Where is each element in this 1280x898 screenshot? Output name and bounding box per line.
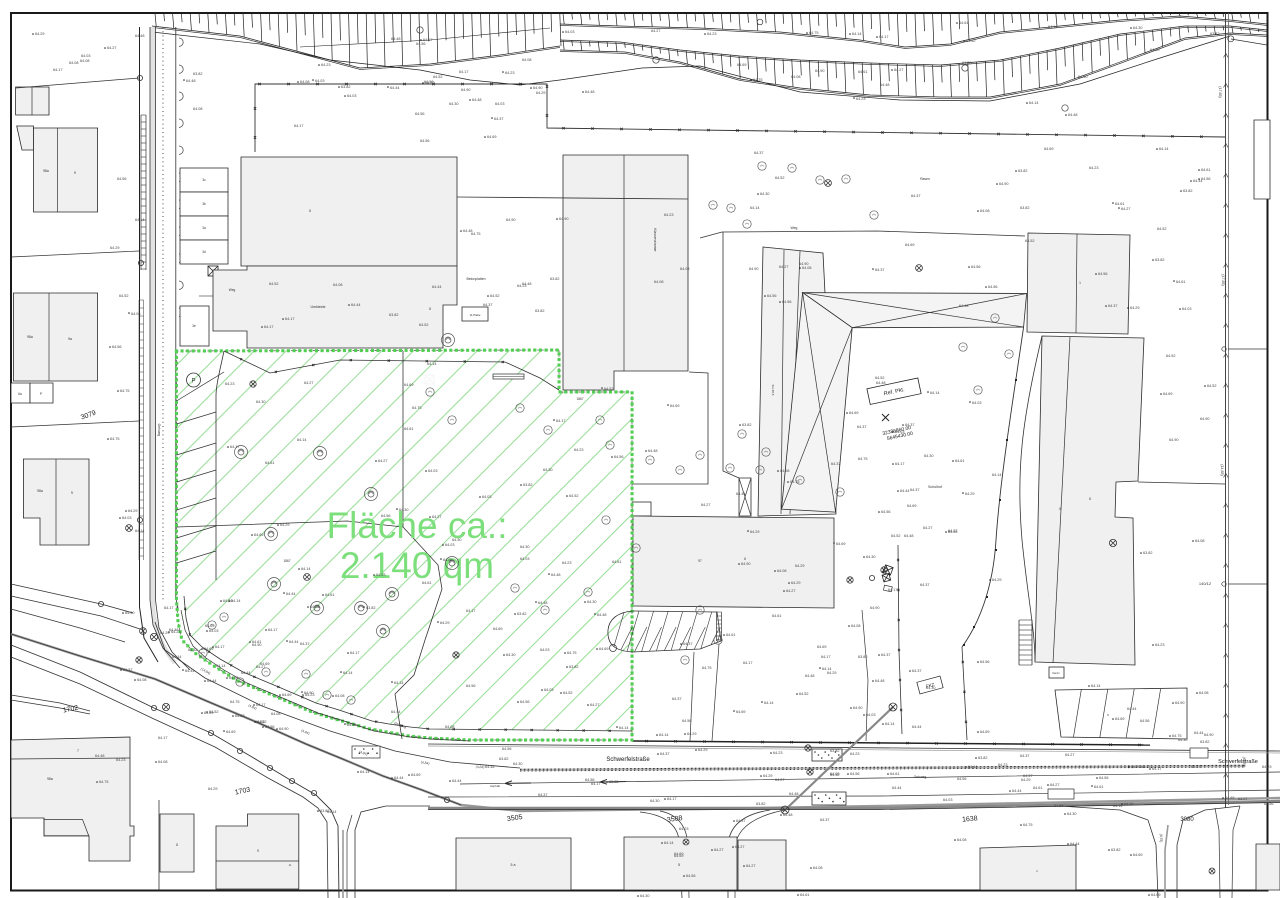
- svg-text:64.08: 64.08: [980, 209, 990, 213]
- svg-text:64.61: 64.61: [772, 614, 782, 618]
- svg-text:64.69: 64.69: [226, 730, 236, 734]
- svg-text:Kamin: Kamin: [1052, 671, 1060, 675]
- svg-text:64.56: 64.56: [686, 874, 696, 878]
- svg-text:64.30: 64.30: [506, 653, 516, 657]
- svg-text:64.56: 64.56: [502, 747, 512, 751]
- svg-text:64.03: 64.03: [943, 798, 953, 802]
- svg-text:64.90: 64.90: [506, 218, 516, 222]
- svg-text:64.29: 64.29: [35, 32, 45, 36]
- svg-text:64.37: 64.37: [911, 194, 921, 198]
- svg-text:64.56: 64.56: [1098, 272, 1108, 276]
- svg-text:64.27: 64.27: [775, 778, 785, 782]
- svg-text:64.08: 64.08: [1199, 691, 1209, 695]
- svg-text:64.23: 64.23: [505, 71, 515, 75]
- svg-text:64.14: 64.14: [885, 722, 895, 726]
- svg-text:64.61: 64.61: [1201, 168, 1211, 172]
- svg-text:64.14: 64.14: [135, 529, 145, 533]
- svg-text:II: II: [1059, 507, 1061, 511]
- svg-text:64.69: 64.69: [411, 773, 421, 777]
- svg-text:64.56: 64.56: [520, 700, 530, 704]
- svg-text:63.82: 63.82: [499, 757, 509, 761]
- svg-text:64.48: 64.48: [95, 754, 105, 758]
- svg-text:63.82: 63.82: [389, 313, 399, 317]
- svg-text:64.29: 64.29: [763, 774, 773, 778]
- svg-text:64.08: 64.08: [335, 694, 345, 698]
- svg-text:64.37: 64.37: [672, 697, 682, 701]
- svg-text:3080: 3080: [1180, 817, 1194, 823]
- svg-text:64.75: 64.75: [110, 437, 120, 441]
- svg-text:64.37: 64.37: [881, 653, 891, 657]
- svg-text:64.44: 64.44: [286, 592, 296, 596]
- svg-text:97: 97: [698, 559, 702, 563]
- svg-text:64.08: 64.08: [851, 624, 861, 628]
- svg-text:64.14: 64.14: [852, 32, 862, 36]
- svg-text:64.44: 64.44: [900, 489, 910, 493]
- svg-text:64.37: 64.37: [1020, 754, 1030, 758]
- svg-text:64.08: 64.08: [680, 267, 690, 271]
- svg-text:64.03: 64.03: [482, 495, 492, 499]
- svg-text:64.52: 64.52: [569, 494, 579, 498]
- svg-text:64.08: 64.08: [780, 469, 790, 473]
- svg-text:64.56: 64.56: [1124, 802, 1134, 806]
- svg-text:64.23: 64.23: [664, 213, 674, 217]
- svg-text:64.08: 64.08: [80, 59, 90, 63]
- svg-text:64.44: 64.44: [390, 86, 400, 90]
- svg-text:64.27: 64.27: [735, 845, 745, 849]
- svg-text:8: 8: [744, 557, 746, 561]
- svg-text:63.82: 63.82: [1020, 206, 1030, 210]
- svg-text:P: P: [191, 379, 195, 385]
- svg-text:140/12: 140/12: [1199, 581, 1212, 586]
- svg-text:64.52: 64.52: [433, 75, 443, 79]
- svg-text:64.23: 64.23: [1155, 643, 1165, 647]
- svg-text:64.30: 64.30: [760, 192, 770, 196]
- svg-text:64.69: 64.69: [980, 730, 990, 734]
- svg-text:64.90: 64.90: [741, 562, 751, 566]
- svg-text:64.61: 64.61: [1033, 786, 1043, 790]
- svg-text:64.03: 64.03: [445, 543, 455, 547]
- svg-text:64.37: 64.37: [754, 151, 764, 155]
- svg-text:64.29: 64.29: [110, 246, 120, 250]
- svg-text:64.30: 64.30: [924, 454, 934, 458]
- svg-text:64.56: 64.56: [614, 455, 624, 459]
- svg-text:64.90: 64.90: [815, 69, 825, 73]
- svg-text:64.08: 64.08: [271, 712, 281, 716]
- svg-text:64.08: 64.08: [522, 58, 532, 62]
- svg-text:64.75: 64.75: [809, 31, 819, 35]
- svg-text:64.75: 64.75: [753, 78, 763, 82]
- svg-text:64.30: 64.30: [866, 555, 876, 559]
- svg-text:64.14: 64.14: [297, 438, 307, 442]
- svg-text:64.37: 64.37: [683, 642, 693, 646]
- svg-text:64.14: 64.14: [360, 770, 370, 774]
- svg-text:64.30: 64.30: [1178, 738, 1188, 742]
- svg-text:64.27: 64.27: [1065, 753, 1075, 757]
- svg-text:64.08: 64.08: [333, 283, 343, 287]
- svg-text:8: 8: [309, 209, 311, 213]
- svg-text:64.48: 64.48: [135, 34, 145, 38]
- svg-text:64.08: 64.08: [957, 838, 967, 842]
- svg-text:64.29: 64.29: [208, 787, 218, 791]
- svg-text:64.27: 64.27: [432, 515, 442, 519]
- svg-text:64.69: 64.69: [736, 710, 746, 714]
- svg-text:64.17: 64.17: [215, 645, 225, 649]
- svg-text:64.48: 64.48: [805, 674, 815, 678]
- svg-text:64.75: 64.75: [858, 457, 868, 461]
- svg-text:64.14: 64.14: [231, 599, 241, 603]
- svg-text:64.29: 64.29: [687, 732, 697, 736]
- svg-text:3e: 3e: [192, 324, 196, 328]
- svg-text:Rasen: Rasen: [920, 177, 930, 181]
- svg-text:64.52: 64.52: [419, 323, 429, 327]
- svg-text:9a: 9a: [68, 337, 72, 341]
- svg-text:64.90: 64.90: [279, 727, 289, 731]
- svg-text:64.17: 64.17: [591, 782, 601, 786]
- svg-text:64.61: 64.61: [612, 560, 622, 564]
- svg-text:64.30: 64.30: [1067, 812, 1077, 816]
- svg-text:64.29: 64.29: [128, 509, 138, 513]
- svg-text:64.29: 64.29: [1021, 778, 1031, 782]
- svg-text:64.29: 64.29: [280, 523, 290, 527]
- svg-text:64.08: 64.08: [813, 866, 823, 870]
- svg-text:1638: 1638: [962, 815, 978, 823]
- svg-text:64.29: 64.29: [992, 578, 1002, 582]
- svg-text:Klassenzimmer: Klassenzimmer: [653, 228, 657, 252]
- svg-text:64.17: 64.17: [459, 70, 469, 74]
- svg-text:64.17: 64.17: [667, 797, 677, 801]
- svg-text:64.69: 64.69: [905, 243, 915, 247]
- svg-text:Schwerfelstraße: Schwerfelstraße: [606, 757, 650, 763]
- svg-text:64.08: 64.08: [445, 725, 455, 729]
- svg-text:64.37: 64.37: [831, 462, 841, 466]
- svg-text:64.69: 64.69: [260, 662, 270, 666]
- svg-text:98a: 98a: [27, 335, 33, 339]
- svg-text:64.90: 64.90: [999, 182, 1009, 186]
- svg-text:64.90: 64.90: [853, 706, 863, 710]
- svg-text:64.23: 64.23: [773, 751, 783, 755]
- svg-text:64.48: 64.48: [522, 282, 532, 286]
- svg-text:64.03: 64.03: [495, 102, 505, 106]
- svg-text:64.52: 64.52: [119, 294, 129, 298]
- svg-text:64.03: 64.03: [520, 557, 530, 561]
- svg-text:5 a: 5 a: [511, 863, 516, 867]
- svg-text:64.75: 64.75: [1023, 823, 1033, 827]
- svg-text:64.48: 64.48: [783, 813, 793, 817]
- svg-text:64.29: 64.29: [698, 748, 708, 752]
- svg-text:64.52: 64.52: [891, 534, 901, 538]
- svg-text:64.27: 64.27: [701, 503, 711, 507]
- svg-text:64.61: 64.61: [404, 427, 414, 431]
- svg-text:64.48: 64.48: [472, 98, 482, 102]
- svg-text:64.17: 64.17: [888, 588, 898, 592]
- svg-text:64.23: 64.23: [116, 758, 126, 762]
- svg-text:64.03: 64.03: [122, 516, 132, 520]
- svg-text:64.69: 64.69: [282, 693, 292, 697]
- svg-text:64.52: 64.52: [1166, 354, 1176, 358]
- svg-text:64.52: 64.52: [563, 691, 573, 695]
- svg-text:64.08: 64.08: [802, 266, 812, 270]
- svg-text:63.82: 63.82: [830, 749, 840, 753]
- svg-text:64.56: 64.56: [962, 61, 972, 65]
- svg-text:64.08: 64.08: [791, 75, 801, 79]
- svg-text:64.90: 64.90: [252, 643, 262, 647]
- svg-text:64.48: 64.48: [538, 601, 548, 605]
- svg-text:64.30: 64.30: [513, 762, 523, 766]
- svg-text:(14,85): (14,85): [1220, 464, 1224, 475]
- svg-text:64.03: 64.03: [81, 54, 91, 58]
- svg-text:64.44: 64.44: [185, 669, 195, 673]
- svg-text:64.44: 64.44: [1012, 789, 1022, 793]
- svg-text:64.08: 64.08: [777, 569, 787, 573]
- svg-text:64.14: 64.14: [1159, 147, 1169, 151]
- svg-text:98a: 98a: [37, 489, 43, 493]
- svg-text:64.29: 64.29: [795, 564, 805, 568]
- svg-text:64.61: 64.61: [1176, 280, 1186, 284]
- svg-text:64.69: 64.69: [674, 854, 684, 858]
- svg-text:Betonplatten: Betonplatten: [466, 277, 485, 281]
- svg-text:3d: 3d: [202, 250, 206, 254]
- svg-text:64.44: 64.44: [892, 786, 902, 790]
- svg-text:Weg: Weg: [791, 226, 798, 230]
- svg-text:64.48: 64.48: [597, 613, 607, 617]
- svg-text:64.17: 64.17: [879, 35, 889, 39]
- svg-text:63.82: 63.82: [569, 665, 579, 669]
- svg-text:64.48: 64.48: [391, 37, 401, 41]
- svg-text:64.90: 64.90: [559, 217, 569, 221]
- svg-text:64.69: 64.69: [204, 711, 214, 715]
- svg-text:64.48: 64.48: [959, 304, 969, 308]
- svg-text:64.61: 64.61: [800, 893, 810, 897]
- svg-text:64.69: 64.69: [836, 542, 846, 546]
- svg-text:64.44: 64.44: [351, 303, 361, 307]
- svg-text:64.23: 64.23: [850, 752, 860, 756]
- svg-text:64.44: 64.44: [241, 671, 251, 675]
- svg-text:64.37: 64.37: [875, 268, 885, 272]
- svg-text:64.90: 64.90: [1078, 75, 1088, 79]
- svg-text:1: 1: [1079, 281, 1081, 285]
- svg-text:64.69: 64.69: [737, 63, 747, 67]
- svg-text:Weg: Weg: [229, 288, 236, 292]
- svg-text:64.56: 64.56: [682, 719, 692, 723]
- svg-text:63.82: 63.82: [1200, 740, 1210, 744]
- svg-text:64.69: 64.69: [670, 404, 680, 408]
- svg-text:64.48: 64.48: [186, 79, 196, 83]
- svg-text:64.56: 64.56: [948, 530, 958, 534]
- svg-text:64.23: 64.23: [707, 32, 717, 36]
- svg-text:64.27: 64.27: [894, 68, 904, 72]
- svg-text:64.08: 64.08: [137, 678, 147, 682]
- svg-text:64.90: 64.90: [1169, 438, 1179, 442]
- svg-text:64.17: 64.17: [1152, 767, 1162, 771]
- svg-text:(41,74): (41,74): [1242, 757, 1246, 768]
- svg-text:64.52: 64.52: [269, 282, 279, 286]
- svg-text:63.82: 63.82: [1155, 258, 1165, 262]
- svg-text:64.23: 64.23: [856, 97, 866, 101]
- svg-text:64.44: 64.44: [736, 492, 746, 496]
- svg-text:64.56: 64.56: [988, 285, 998, 289]
- svg-text:64.30: 64.30: [650, 799, 660, 803]
- svg-text:64.17: 64.17: [743, 661, 753, 665]
- svg-text:64.48: 64.48: [1068, 113, 1078, 117]
- svg-text:64.23: 64.23: [235, 714, 245, 718]
- svg-text:64.69: 64.69: [205, 624, 215, 628]
- svg-text:64.61: 64.61: [959, 21, 969, 25]
- svg-text:64.56: 64.56: [420, 139, 430, 143]
- svg-text:64.23: 64.23: [998, 763, 1008, 767]
- svg-text:64.14: 64.14: [172, 655, 182, 659]
- svg-text:64.75: 64.75: [230, 700, 240, 704]
- svg-text:64.27: 64.27: [304, 381, 314, 385]
- svg-text:64.48: 64.48: [169, 628, 179, 632]
- svg-text:64.30: 64.30: [399, 508, 409, 512]
- svg-text:64.14: 64.14: [343, 671, 353, 675]
- svg-text:64.29: 64.29: [750, 530, 760, 534]
- svg-text:64.08: 64.08: [69, 61, 79, 65]
- svg-text:64.75: 64.75: [790, 480, 800, 484]
- svg-text:64.69: 64.69: [1115, 717, 1125, 721]
- svg-text:3a: 3a: [202, 226, 206, 230]
- svg-text:64.27: 64.27: [1121, 207, 1131, 211]
- svg-text:64.48: 64.48: [904, 534, 914, 538]
- svg-text:64.14: 64.14: [1091, 684, 1101, 688]
- svg-text:64.90: 64.90: [1204, 733, 1214, 737]
- svg-text:64.17: 64.17: [821, 655, 831, 659]
- svg-text:64.52: 64.52: [490, 294, 500, 298]
- svg-text:64.69: 64.69: [254, 533, 264, 537]
- svg-text:64.27: 64.27: [1050, 783, 1060, 787]
- svg-text:64.44: 64.44: [912, 725, 922, 729]
- svg-text:64.29: 64.29: [536, 91, 546, 95]
- svg-text:64.48: 64.48: [876, 381, 886, 385]
- svg-text:64.17: 64.17: [230, 445, 240, 449]
- svg-text:63.82: 63.82: [535, 309, 545, 313]
- svg-text:64.08: 64.08: [300, 80, 310, 84]
- svg-text:64.44: 64.44: [289, 640, 299, 644]
- svg-text:64.08: 64.08: [654, 280, 664, 284]
- svg-text:64.14: 64.14: [659, 733, 669, 737]
- svg-text:64.90: 64.90: [533, 86, 543, 90]
- svg-text:64.56: 64.56: [117, 177, 127, 181]
- svg-text:64.48: 64.48: [551, 573, 561, 577]
- svg-text:64.14: 64.14: [764, 701, 774, 705]
- svg-text:64.14: 64.14: [1029, 101, 1039, 105]
- svg-text:64.56: 64.56: [466, 684, 476, 688]
- svg-text:64.14: 64.14: [301, 567, 311, 571]
- svg-text:Schulhof: Schulhof: [928, 485, 942, 489]
- svg-text:64.56: 64.56: [265, 725, 275, 729]
- svg-text:64.56: 64.56: [381, 514, 391, 518]
- svg-text:63.82: 63.82: [341, 85, 351, 89]
- svg-text:3c: 3c: [202, 178, 206, 182]
- svg-text:64.56: 64.56: [112, 345, 122, 349]
- svg-text:64.37: 64.37: [494, 117, 504, 121]
- svg-text:64.61: 64.61: [858, 70, 868, 74]
- svg-text:64.52: 64.52: [799, 692, 809, 696]
- svg-text:64.03: 64.03: [347, 94, 357, 98]
- svg-text:64.48: 64.48: [875, 679, 885, 683]
- svg-text:64.48: 64.48: [648, 449, 658, 453]
- svg-text:64.27: 64.27: [714, 848, 724, 852]
- svg-text:98a: 98a: [43, 169, 49, 173]
- svg-text:64.61: 64.61: [726, 633, 736, 637]
- svg-text:64.17: 64.17: [158, 736, 168, 740]
- svg-text:64.03: 64.03: [866, 713, 876, 717]
- svg-text:64.61: 64.61: [265, 461, 275, 465]
- svg-text:64.52: 64.52: [875, 376, 885, 380]
- svg-text:64.75: 64.75: [412, 406, 422, 410]
- svg-text:64.61: 64.61: [1094, 785, 1104, 789]
- svg-text:63.82: 63.82: [978, 756, 988, 760]
- svg-text:64.48: 64.48: [880, 83, 890, 87]
- svg-text:JL: JL: [289, 863, 292, 867]
- svg-text:64.44: 64.44: [968, 765, 978, 769]
- svg-text:64.30: 64.30: [640, 894, 650, 898]
- svg-text:64.69: 64.69: [817, 645, 827, 649]
- svg-text:(4,84): (4,84): [476, 765, 485, 769]
- svg-text:63.82: 63.82: [1111, 848, 1121, 852]
- svg-text:64.03: 64.03: [209, 629, 219, 633]
- svg-text:64.90: 64.90: [1175, 701, 1185, 705]
- svg-text:7: 7: [77, 749, 79, 753]
- svg-text:64.29: 64.29: [827, 671, 837, 675]
- svg-text:64.44: 64.44: [391, 710, 401, 714]
- svg-text:64.90: 64.90: [229, 676, 239, 680]
- svg-text:63.82: 63.82: [858, 655, 868, 659]
- svg-text:64.48: 64.48: [485, 765, 495, 769]
- svg-text:64.17: 64.17: [350, 651, 360, 655]
- svg-text:64.27: 64.27: [378, 459, 388, 463]
- svg-text:64.56: 64.56: [1201, 177, 1211, 181]
- svg-text:Asphalt: Asphalt: [490, 784, 500, 788]
- svg-text:64.61: 64.61: [890, 772, 900, 776]
- svg-text:64.52: 64.52: [188, 648, 198, 652]
- svg-text:63.82: 63.82: [742, 423, 752, 427]
- svg-text:64.48: 64.48: [463, 229, 473, 233]
- svg-text:64.17: 64.17: [466, 609, 476, 613]
- svg-text:3b: 3b: [202, 202, 206, 206]
- svg-text:63.82: 63.82: [523, 483, 533, 487]
- svg-text:64.03: 64.03: [315, 79, 325, 83]
- svg-text:64.14: 64.14: [1113, 804, 1123, 808]
- svg-text:64.69: 64.69: [1151, 893, 1161, 897]
- svg-text:Umkleide: Umkleide: [311, 305, 326, 309]
- svg-text:64.03: 64.03: [376, 573, 386, 577]
- svg-text:(4,75): (4,75): [1159, 834, 1163, 843]
- svg-text:64.48: 64.48: [585, 90, 595, 94]
- svg-text:63.82: 63.82: [756, 802, 766, 806]
- svg-text:64.23: 64.23: [574, 448, 584, 452]
- svg-text:64.69: 64.69: [487, 135, 497, 139]
- svg-text:64.69: 64.69: [849, 411, 859, 415]
- svg-text:64.37: 64.37: [660, 752, 670, 756]
- svg-text:64.75: 64.75: [1131, 765, 1141, 769]
- svg-text:Gehweg: Gehweg: [157, 424, 161, 437]
- svg-text:64.44: 64.44: [1194, 731, 1204, 735]
- svg-text:64.08: 64.08: [830, 772, 840, 776]
- svg-text:64.48: 64.48: [789, 792, 799, 796]
- svg-text:64.30: 64.30: [520, 545, 530, 549]
- svg-text:64.37: 64.37: [910, 488, 920, 492]
- svg-text:64.14: 64.14: [427, 362, 437, 366]
- svg-text:64.17: 64.17: [285, 317, 295, 321]
- svg-text:64.03: 64.03: [565, 30, 575, 34]
- svg-text:64.44: 64.44: [1070, 842, 1080, 846]
- svg-text:64.30: 64.30: [256, 400, 266, 404]
- svg-text:64.14: 64.14: [135, 218, 145, 222]
- svg-text:64.56: 64.56: [782, 300, 792, 304]
- svg-text:(17,85): (17,85): [1218, 86, 1222, 97]
- svg-text:64.52: 64.52: [966, 39, 976, 43]
